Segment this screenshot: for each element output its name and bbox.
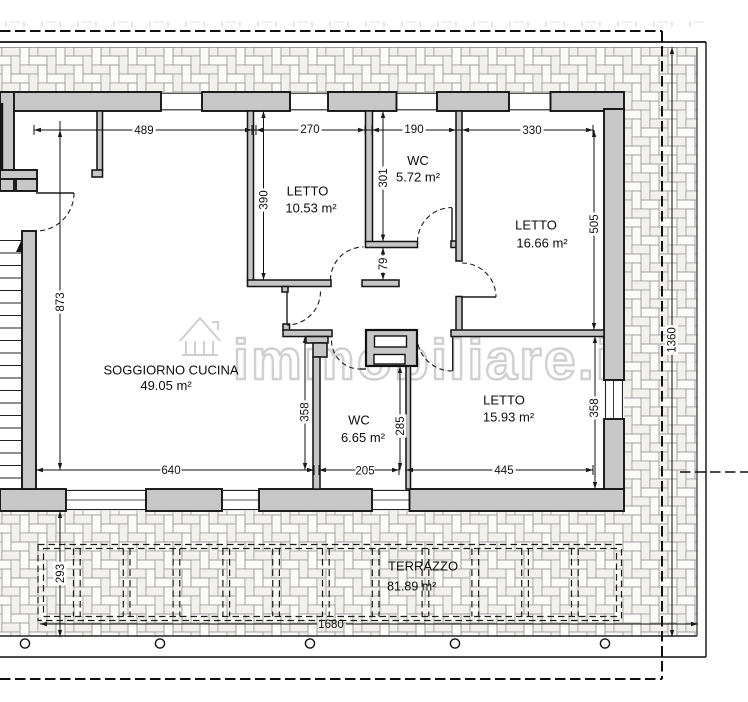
- svg-text:6.65 m²: 6.65 m²: [341, 430, 386, 445]
- svg-text:81.89 m²: 81.89 m²: [387, 580, 436, 594]
- svg-text:immobiliare.it: immobiliare.it: [233, 328, 633, 392]
- svg-text:489: 489: [134, 125, 153, 137]
- svg-text:WC: WC: [407, 153, 429, 168]
- svg-text:SOGGIORNO CUCINA: SOGGIORNO CUCINA: [103, 363, 238, 378]
- svg-text:330: 330: [522, 125, 541, 137]
- svg-text:TERRAZZO: TERRAZZO: [388, 559, 458, 574]
- svg-text:1360: 1360: [667, 327, 679, 353]
- svg-text:358: 358: [300, 402, 312, 421]
- svg-text:285: 285: [395, 416, 407, 435]
- svg-text:49.05 m²: 49.05 m²: [140, 378, 192, 393]
- svg-text:LETTO: LETTO: [287, 184, 329, 199]
- svg-text:293: 293: [55, 564, 67, 583]
- svg-text:190: 190: [404, 124, 423, 136]
- svg-text:LETTO: LETTO: [515, 218, 557, 233]
- svg-text:1680: 1680: [318, 619, 344, 631]
- svg-text:873: 873: [55, 292, 67, 311]
- svg-text:445: 445: [494, 465, 513, 477]
- svg-text:15.93 m²: 15.93 m²: [483, 410, 535, 425]
- svg-text:LETTO: LETTO: [483, 393, 525, 408]
- svg-text:301: 301: [378, 168, 390, 187]
- svg-text:10.53 m²: 10.53 m²: [285, 201, 337, 216]
- svg-text:205: 205: [355, 466, 374, 478]
- svg-text:505: 505: [589, 214, 601, 233]
- svg-text:358: 358: [589, 398, 601, 417]
- svg-text:5.72 m²: 5.72 m²: [396, 170, 441, 185]
- svg-text:640: 640: [161, 465, 180, 477]
- svg-text:390: 390: [259, 190, 271, 209]
- svg-text:WC: WC: [348, 413, 370, 428]
- svg-text:16.66 m²: 16.66 m²: [516, 236, 568, 251]
- svg-text:79: 79: [378, 258, 390, 271]
- svg-text:270: 270: [300, 124, 319, 136]
